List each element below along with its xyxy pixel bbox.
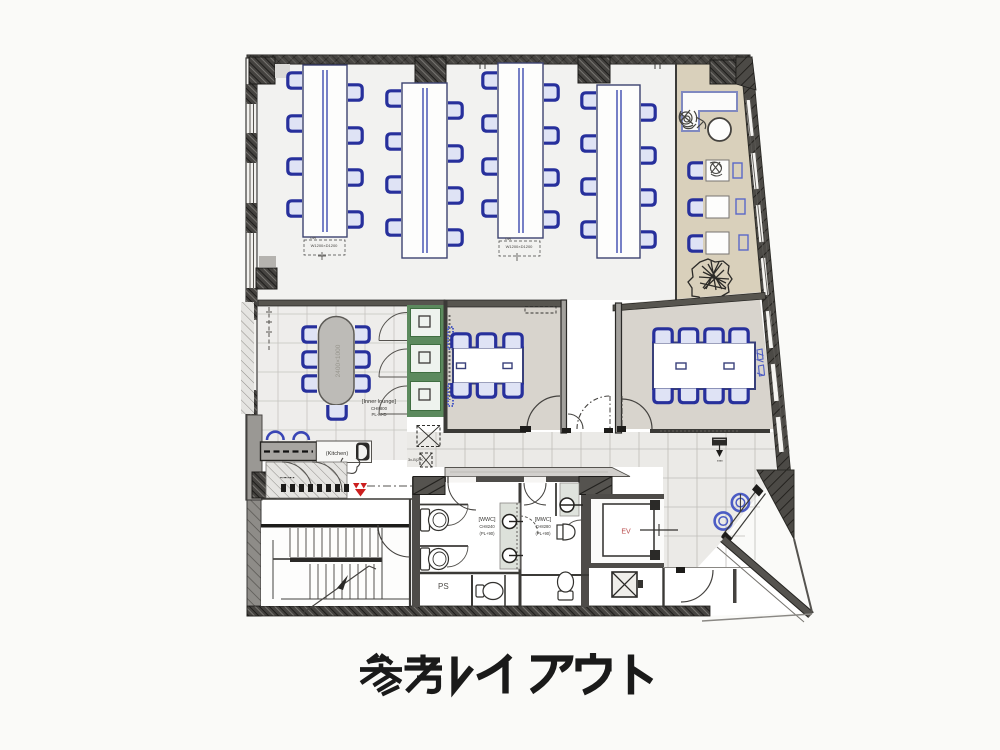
svg-text:2400×1000: 2400×1000 xyxy=(335,344,342,377)
svg-text:[WWC]: [WWC] xyxy=(478,517,496,523)
svg-text:3x-B(2)K: 3x-B(2)K xyxy=(408,458,423,462)
svg-text:EV: EV xyxy=(621,529,631,536)
svg-text:PS: PS xyxy=(438,582,449,591)
svg-text:CH8280: CH8280 xyxy=(535,524,551,529)
svg-text:OW: OW xyxy=(310,236,317,240)
svg-text:[Inner lounge]: [Inner lounge] xyxy=(362,399,397,405)
svg-text:W1200×D1200: W1200×D1200 xyxy=(506,244,534,249)
svg-text:CH8240: CH8240 xyxy=(479,524,495,529)
svg-text:(PL+90): (PL+90) xyxy=(535,531,551,536)
svg-text:▪▫▪▪▫▪▪▫▪: ▪▫▪▪▫▪▪▫▪ xyxy=(280,475,295,480)
svg-text:OW: OW xyxy=(505,237,512,241)
svg-text:(PL+90): (PL+90) xyxy=(479,531,495,536)
svg-text:(Kitchen): (Kitchen) xyxy=(326,451,349,457)
svg-text:[MWC]: [MWC] xyxy=(535,517,552,523)
svg-text:▪▪▪▪: ▪▪▪▪ xyxy=(717,458,723,463)
svg-text:W1200×D1200: W1200×D1200 xyxy=(311,243,339,248)
